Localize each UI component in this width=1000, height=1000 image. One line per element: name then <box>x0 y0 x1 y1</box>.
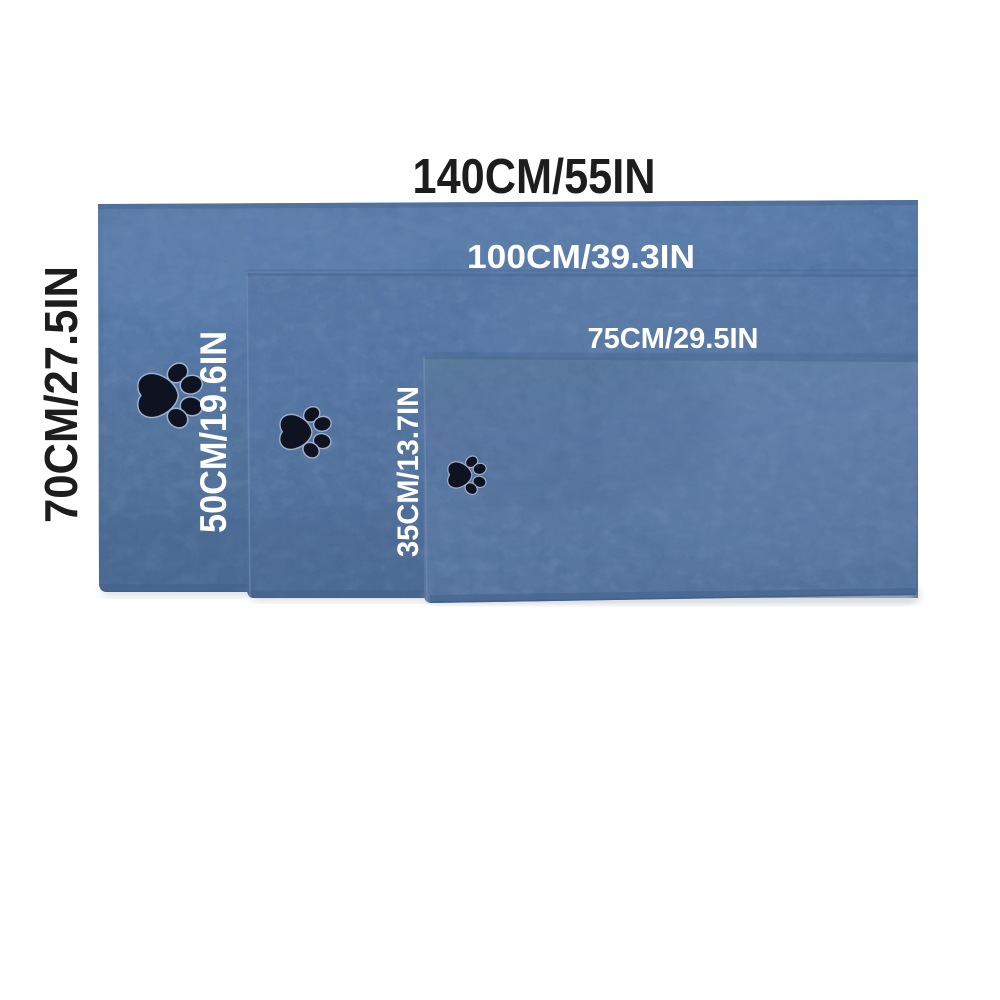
svg-text:35CM/13.7IN: 35CM/13.7IN <box>392 386 425 557</box>
svg-text:70CM/27.5IN: 70CM/27.5IN <box>35 266 87 523</box>
svg-text:75CM/29.5IN: 75CM/29.5IN <box>588 323 759 355</box>
svg-text:50CM/19.6IN: 50CM/19.6IN <box>193 331 234 533</box>
svg-text:100CM/39.3IN: 100CM/39.3IN <box>467 238 695 275</box>
svg-text:140CM/55IN: 140CM/55IN <box>413 150 656 204</box>
